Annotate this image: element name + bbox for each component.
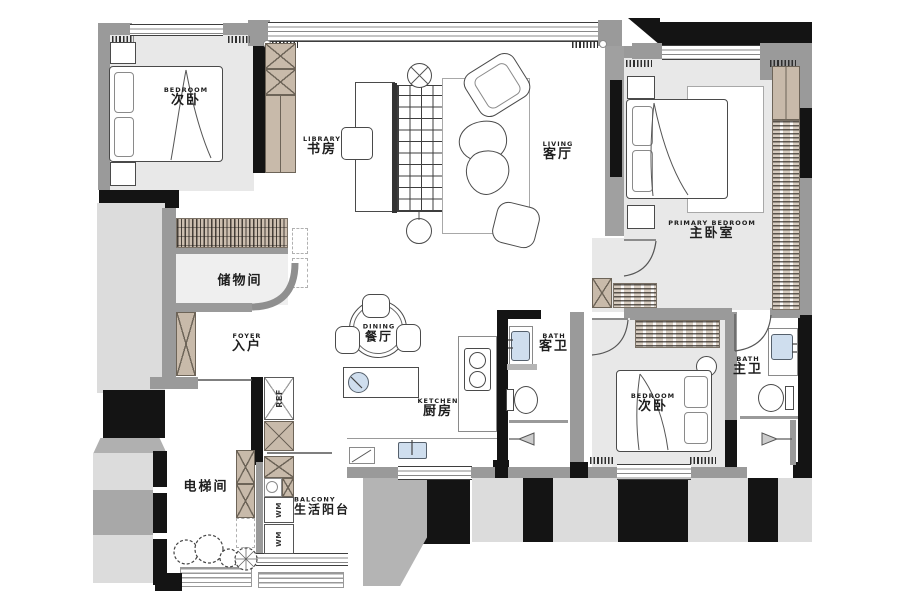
bed-tl-pillow-1 (114, 72, 134, 113)
wall-right-b2 (798, 315, 812, 475)
washer-top: WM (264, 497, 294, 523)
exterior-block-left (97, 203, 165, 393)
bed-tl-pillow-2 (114, 117, 134, 157)
curtain-icon-bedroom-br-left (590, 457, 615, 464)
wall-right-b1 (800, 108, 812, 178)
label-balcony-zh: 生活阳台 (294, 504, 350, 518)
window-primary-bedroom (662, 45, 760, 60)
dining-chair-right (396, 324, 421, 352)
exterior-band-gray-4 (778, 478, 812, 542)
dining-chair-left (335, 326, 360, 354)
wall-kitchen-bottom-2 (471, 467, 495, 478)
curtain-icon-bedroom-tl-right (228, 36, 250, 43)
master-wardrobe-doors (772, 66, 800, 120)
elevator-cabinet-x2 (236, 484, 255, 518)
nightstand-master-top (627, 76, 655, 99)
label-bedroom-tl: BEDROOM 次卧 (164, 87, 208, 109)
nightstand-master-bottom (627, 205, 655, 229)
island-sink (348, 372, 369, 393)
exterior-band-gray-1 (472, 478, 523, 542)
exterior-band-diagonal (363, 478, 427, 586)
storage-shelf-hatch (176, 218, 288, 248)
ceiling-fan-icon (407, 63, 432, 88)
wall-storage-left (162, 208, 176, 380)
exterior-band-black-3 (618, 478, 688, 542)
laundry-sink-bowl (266, 481, 278, 493)
kitchen-counter-line (347, 438, 497, 439)
wall-storage-bottom (162, 303, 252, 312)
wall-guest-bath-top (497, 310, 541, 319)
fridge: REF (264, 377, 294, 420)
label-guest-bath: BATH 客卫 (539, 333, 569, 355)
burner-2 (469, 371, 486, 388)
wall-master-top-strip (624, 46, 662, 58)
label-bedroom-br: BEDROOM 次卧 (631, 393, 675, 415)
bed-br-pillow-1 (684, 376, 708, 408)
bed-br-pillow-2 (684, 412, 708, 444)
elevator-cabinet-x1 (236, 450, 255, 484)
washer-bottom-label: WM (275, 531, 283, 547)
dining-chair-top (362, 294, 390, 318)
master-shower-glass (790, 420, 796, 465)
nightstand-tl-bottom (110, 162, 136, 186)
shoe-cabinet (176, 312, 196, 376)
label-elevator-zh: 电梯间 (183, 481, 228, 496)
label-library-zh: 书房 (303, 143, 341, 158)
wall-guest-bath-corner-b (493, 460, 509, 478)
wall-bath-bedroom-column (570, 312, 584, 465)
kitchen-window-symbol (349, 447, 375, 464)
balcony-steps (258, 572, 344, 588)
elevator-steps (180, 567, 252, 587)
wall-elevator-gap-2 (153, 533, 167, 539)
washer-top-label-wrap: WM (265, 498, 293, 522)
fridge-label-wrap: REF (265, 378, 293, 419)
master-sink (771, 334, 793, 360)
label-foyer: FOYER 入户 (232, 333, 262, 355)
master-wardrobe-hatch (772, 120, 800, 310)
window-bedroom-tl (130, 24, 223, 36)
wall-bedroom-br-bottom-1 (588, 467, 617, 478)
curtain-ring-right (599, 40, 607, 48)
hall-cabinet-x (592, 278, 612, 308)
label-dining-zh: 餐厅 (363, 331, 395, 345)
label-master-bath: BATH 主卫 (733, 356, 763, 378)
wardrobe-library-x2 (265, 69, 296, 95)
storage-cabinet-dash-2 (292, 258, 308, 288)
master-toilet-tank (785, 386, 794, 410)
wardrobe-library-x1 (265, 43, 296, 69)
wall-foyer-bottom (150, 377, 198, 389)
floor-lamp-icon (406, 218, 432, 244)
exterior-band-black-4 (748, 478, 778, 542)
wall-bedroom-br-bottom-2 (691, 467, 747, 478)
exterior-wall-black-left (103, 390, 165, 438)
library-grid-sofa (397, 85, 443, 212)
storage-cabinet-dash-1 (292, 228, 308, 254)
label-living-zh: 客厅 (543, 148, 574, 163)
guest-sink (511, 331, 530, 361)
bed-master-pillow-1 (632, 106, 653, 146)
master-shower-divider (740, 416, 798, 419)
curtain-icon-master-left (626, 60, 652, 67)
window-kitchen-bottom (398, 466, 472, 480)
label-kitchen: KETCHEN 厨房 (417, 398, 458, 420)
wall-right-g2 (800, 178, 812, 315)
label-bedroom-tl-zh: 次卧 (164, 94, 208, 109)
curtain-icon-bedroom-br-right (690, 457, 716, 464)
label-bedroom-br-zh: 次卧 (631, 400, 675, 415)
wall-kitchen-bottom-1 (347, 467, 399, 478)
bedroom-br-wardrobe-hatch (635, 320, 720, 348)
guest-toilet-tank (506, 389, 514, 411)
exterior-band-gray-3 (688, 478, 748, 542)
wall-elevator-corner (155, 573, 182, 591)
hall-shelf-hatch (613, 283, 657, 308)
living-ottoman (490, 199, 543, 250)
wall-topleft-h1 (98, 23, 132, 35)
label-kitchen-zh: 厨房 (417, 405, 458, 420)
wall-guest-bath-left (497, 313, 508, 463)
wall-bedroom-tl-right (253, 33, 265, 173)
curtain-icon-living-right (572, 41, 598, 48)
wall-topright-band (658, 22, 812, 45)
label-storage-zh: 储物间 (217, 275, 262, 290)
label-library: LIBRARY 书房 (303, 136, 341, 158)
guest-shelf (507, 364, 537, 370)
label-primary-bedroom: PRIMARY BEDROOM 主卧室 (668, 220, 756, 242)
floor-plan: REF WM WM (0, 0, 910, 607)
window-top-long (268, 22, 600, 42)
wall-right-g1 (800, 80, 812, 108)
balcony-cabinet-x2 (264, 456, 294, 478)
guest-shower-divider (509, 420, 568, 423)
label-dining: DINING 餐厅 (363, 323, 395, 344)
exterior-band-black-2 (523, 478, 553, 542)
label-storage: 储物间 (217, 275, 262, 290)
wall-guest-bath-bottom (508, 467, 570, 478)
label-living: LIVING 客厅 (543, 141, 574, 163)
label-master-bath-zh: 主卫 (733, 363, 763, 378)
window-balcony (256, 553, 348, 566)
exterior-stack-3 (93, 535, 153, 583)
tv-panel (610, 80, 622, 177)
wall-elevator-gap-1 (153, 487, 167, 493)
label-balcony: BALCONY 生活阳台 (294, 496, 350, 517)
guest-toilet-bowl (514, 386, 538, 414)
balcony-cabinet-x1 (264, 421, 294, 451)
nightstand-tl-top (110, 42, 136, 64)
washer-bottom-label-wrap: WM (265, 525, 293, 553)
fridge-label: REF (275, 389, 284, 408)
wall-elevator-left (153, 451, 167, 585)
exterior-stack-2 (93, 490, 153, 536)
label-primary-bedroom-zh: 主卧室 (668, 227, 756, 242)
washer-bottom: WM (264, 524, 294, 554)
wall-bedroom-br-top (630, 312, 726, 320)
washer-top-label: WM (275, 502, 283, 518)
elevator-cabinet-dash (236, 518, 255, 548)
burner-1 (469, 352, 486, 369)
kitchen-sink (398, 442, 427, 459)
balcony-cabinet-x3 (282, 478, 294, 497)
label-elevator: 电梯间 (183, 481, 228, 496)
exterior-band-gray-2 (553, 478, 618, 542)
master-toilet-bowl (758, 384, 784, 412)
label-guest-bath-zh: 客卫 (539, 340, 569, 355)
wall-topright-diagonal (628, 18, 660, 45)
wardrobe-library-doors (265, 95, 296, 173)
storage-shelf-base (176, 248, 288, 254)
exterior-stack-1 (93, 453, 153, 491)
bed-master-pillow-2 (632, 150, 653, 192)
library-chair (341, 127, 373, 160)
label-foyer-zh: 入户 (232, 340, 262, 355)
wall-balcony-strip (256, 462, 263, 558)
window-bedroom-br (617, 464, 691, 480)
wall-corner-b1 (570, 462, 588, 478)
